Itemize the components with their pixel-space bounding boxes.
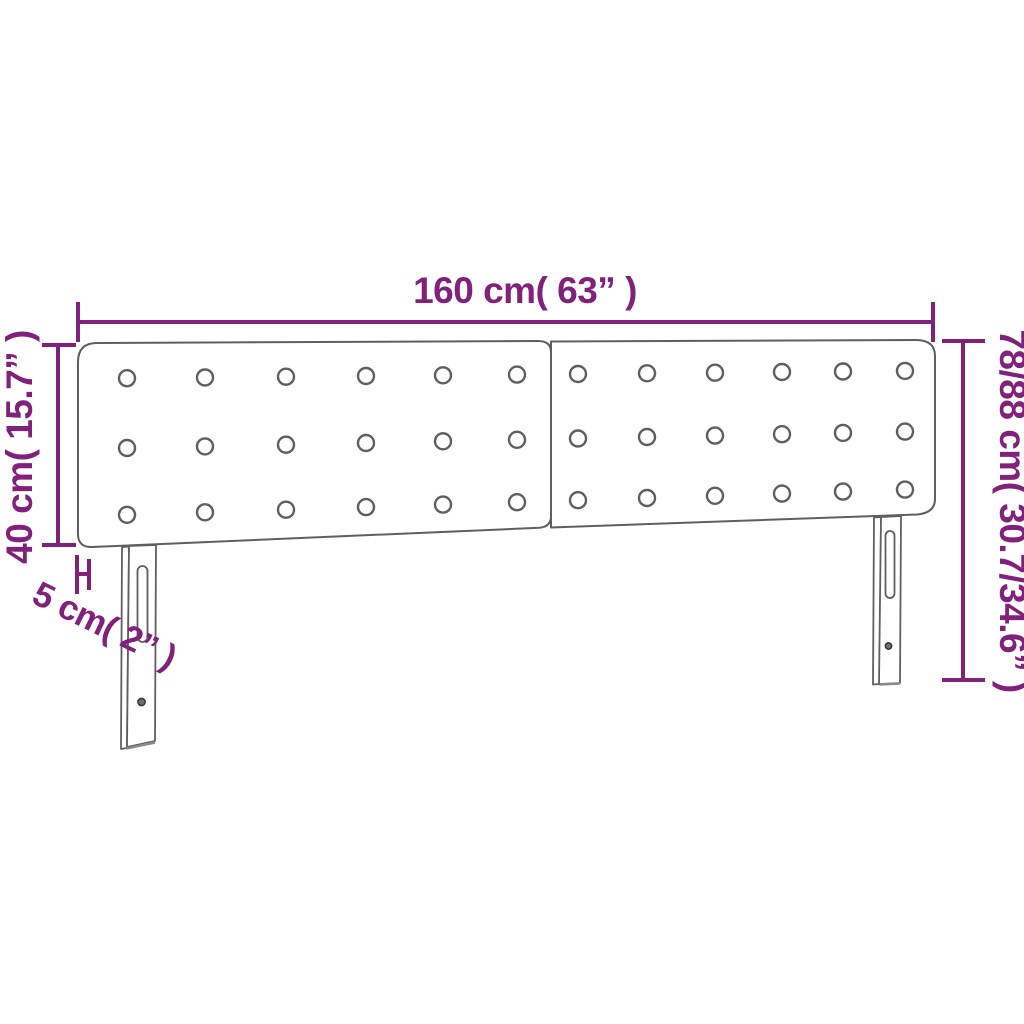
button-tuft	[897, 424, 913, 440]
headboard-left-panel	[78, 341, 551, 547]
button-tuft	[435, 367, 451, 383]
button-tuft	[278, 502, 294, 518]
button-tuft	[119, 370, 135, 386]
button-tuft	[119, 440, 135, 456]
dimension-diagram: 160 cm( 63” ) 40 cm( 15.7” ) 78/88 cm( 3…	[0, 0, 1024, 1024]
button-tuft	[774, 426, 790, 442]
total-height-dimension-label: 78/88 cm( 30.7/34.6” )	[992, 329, 1024, 692]
right-leg-screw	[885, 643, 891, 649]
button-tuft	[707, 488, 723, 504]
button-tuft	[358, 499, 374, 515]
right-leg	[873, 516, 901, 685]
button-tuft	[897, 363, 913, 379]
width-dimension-label: 160 cm( 63” )	[413, 270, 637, 311]
button-tuft	[509, 494, 525, 510]
button-tuft	[197, 438, 213, 454]
button-tuft	[509, 432, 525, 448]
button-tuft	[278, 369, 294, 385]
button-tuft	[509, 367, 525, 383]
total-height-dimension: 78/88 cm( 30.7/34.6” )	[942, 329, 1024, 692]
button-tuft	[570, 431, 586, 447]
button-tuft	[639, 490, 655, 506]
button-tuft	[358, 368, 374, 384]
button-tuft	[570, 492, 586, 508]
panel-height-dimension-label: 40 cm( 15.7” )	[0, 330, 40, 564]
button-tuft	[707, 365, 723, 381]
button-tuft	[435, 433, 451, 449]
button-tuft	[197, 504, 213, 520]
width-dimension: 160 cm( 63” )	[78, 270, 933, 342]
button-tuft	[197, 370, 213, 386]
button-tuft	[897, 482, 913, 498]
left-leg-screw	[138, 698, 145, 705]
button-tuft	[835, 364, 851, 380]
panel-height-dimension: 40 cm( 15.7” )	[0, 330, 76, 564]
headboard-right-panel	[551, 340, 935, 528]
dimension-diagram-page: 160 cm( 63” ) 40 cm( 15.7” ) 78/88 cm( 3…	[0, 0, 1024, 1024]
button-tuft	[774, 486, 790, 502]
button-tuft	[835, 484, 851, 500]
button-tuft	[119, 507, 135, 523]
button-tuft	[358, 435, 374, 451]
button-tuft	[707, 428, 723, 444]
button-tuft	[835, 425, 851, 441]
button-tuft	[435, 497, 451, 513]
button-tuft	[639, 365, 655, 381]
thickness-dimension-label: 5 cm( 2” )	[26, 574, 182, 677]
right-leg-slot	[886, 531, 895, 598]
button-tuft	[278, 437, 294, 453]
button-tuft	[570, 366, 586, 382]
right-leg-bottom-edge	[880, 684, 901, 685]
button-tuft	[639, 429, 655, 445]
thickness-dimension: 5 cm( 2” )	[26, 555, 182, 677]
button-tuft	[774, 364, 790, 380]
